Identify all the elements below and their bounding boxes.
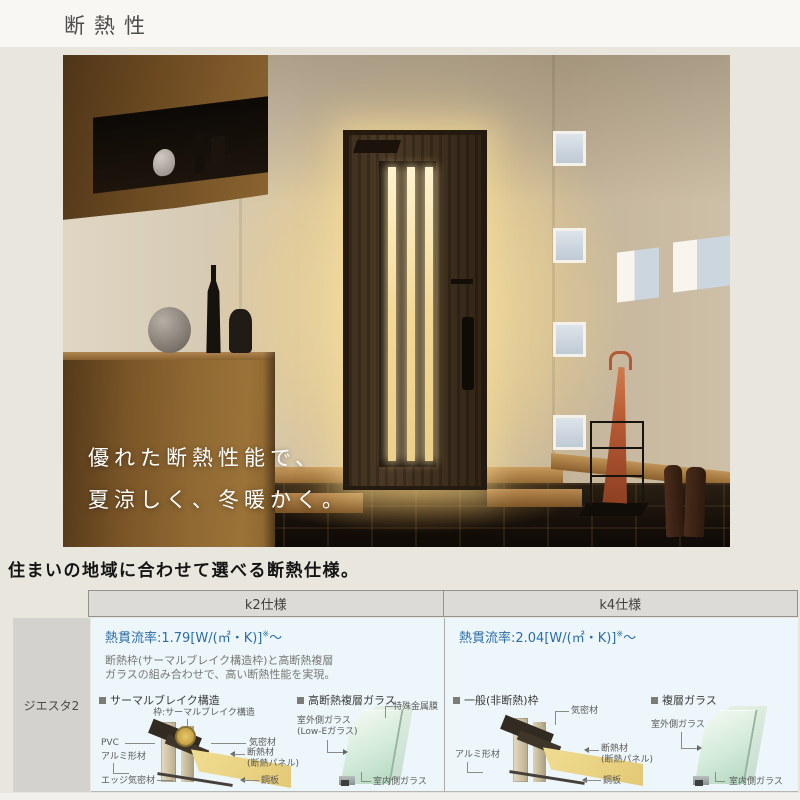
leader-line xyxy=(555,711,569,712)
door-closer xyxy=(353,140,401,153)
label-insulation-sub: (断熱パネル) xyxy=(601,755,653,766)
slit-window xyxy=(553,228,586,263)
spec-table-header: k2仕様 k4仕様 xyxy=(88,590,798,617)
label-inner-glass: 室内側ガラス xyxy=(373,777,427,788)
boot xyxy=(664,465,685,538)
u-value-text: 熱貫流率:1.79[W/(㎡・K)] xyxy=(105,631,262,646)
label-aluminum: アルミ形材 xyxy=(455,750,500,761)
leader-line xyxy=(681,732,682,748)
slit-window xyxy=(553,415,586,450)
arrow-icon xyxy=(697,745,705,751)
bottle-vase xyxy=(203,265,224,353)
insulated-glass-diagram: 高断熱複層ガラス 特殊金属膜 室外側ガラス (Low-Eガラス) 室内側ガラス xyxy=(297,692,441,790)
hero-caption-line1: 優れた断熱性能で、 xyxy=(88,437,348,479)
square-bullet-icon xyxy=(651,697,658,704)
leader-line xyxy=(157,780,173,781)
door-glass-panel xyxy=(379,161,436,467)
label-steel: 鋼板 xyxy=(603,776,621,787)
wood-step xyxy=(487,489,582,507)
spec-cell-k4: 熱貫流率:2.04[W/(㎡・K)]※〜 一般(非断熱)枠 気密材 アルミ形材 … xyxy=(444,618,798,792)
diagram-title: 一般(非断熱)枠 xyxy=(453,692,539,708)
slit-window xyxy=(553,322,586,357)
double-glazing-diagram: 複層ガラス 室外側ガラス 室内側ガラス xyxy=(651,692,795,790)
square-bullet-icon xyxy=(99,697,106,704)
label-film: 特殊金属膜 xyxy=(393,702,438,713)
standard-frame-diagram: 一般(非断熱)枠 気密材 アルミ形材 断熱材 (断熱パネル) 鋼板 xyxy=(453,692,648,790)
umbrella-stand xyxy=(590,421,644,505)
door-handle xyxy=(462,317,474,390)
u-value-tilde: 〜 xyxy=(269,631,282,646)
square-bullet-icon xyxy=(297,697,304,704)
label-insulation-sub: (断熱パネル) xyxy=(247,759,299,770)
wall-cabinet xyxy=(63,55,268,225)
shelf-bottle xyxy=(195,132,205,173)
small-vase xyxy=(229,309,252,353)
spec-description-line2: ガラスの組み合わせで、高い断熱性能を実現。 xyxy=(105,666,335,682)
slit-window xyxy=(617,247,659,302)
leader-line xyxy=(467,762,468,772)
leader-line xyxy=(585,780,601,781)
leader-line xyxy=(361,781,371,782)
leader-line xyxy=(681,748,697,749)
u-value-k4: 熱貫流率:2.04[W/(㎡・K)]※〜 xyxy=(459,627,636,646)
leader-line xyxy=(467,772,483,773)
diagram-title: 高断熱複層ガラス xyxy=(297,692,396,708)
door-lock xyxy=(451,279,473,284)
cabinet-shelf xyxy=(93,96,268,193)
label-outer-glass: 室外側ガラス xyxy=(651,720,705,731)
leader-line xyxy=(715,781,725,782)
table-header-k4: k4仕様 xyxy=(443,591,798,616)
leader-line xyxy=(385,706,393,707)
leader-line xyxy=(125,743,155,744)
front-door xyxy=(343,130,487,490)
table-header-k2: k2仕様 xyxy=(89,591,443,616)
door-glass-slit xyxy=(388,167,396,461)
leader-line xyxy=(385,706,386,718)
boot xyxy=(684,467,706,538)
label-pvc: PVC xyxy=(101,738,119,749)
leader-line xyxy=(243,780,259,781)
diagram-title: サーマルブレイク構造 xyxy=(99,692,220,708)
label-airtight: 気密材 xyxy=(571,706,598,717)
round-vase xyxy=(148,307,191,353)
slit-window xyxy=(553,131,586,166)
square-bullet-icon xyxy=(453,697,460,704)
hero-caption-line2: 夏涼しく、冬暖かく。 xyxy=(88,479,348,521)
section-heading: 住まいの地域に合わせて選べる断熱仕様。 xyxy=(8,556,360,581)
label-aluminum: アルミ形材 xyxy=(101,752,146,763)
arrow-icon xyxy=(343,749,351,755)
label-insulation: 断熱材 xyxy=(601,744,628,755)
u-value-tilde: 〜 xyxy=(623,631,636,646)
hero-photo: 優れた断熱性能で、 夏涼しく、冬暖かく。 xyxy=(63,55,730,547)
leader-line xyxy=(327,752,343,753)
label-insulation: 断熱材 xyxy=(247,748,274,759)
glass-spacer-art xyxy=(695,780,703,786)
label-frame-note: 枠:サーマルブレイク構造 xyxy=(129,708,279,719)
u-value-text: 熱貫流率:2.04[W/(㎡・K)] xyxy=(459,631,616,646)
spec-cell-k2: 熱貫流率:1.79[W/(㎡・K)]※〜 断熱枠(サーマルブレイク構造枠)と高断… xyxy=(91,618,444,792)
page-header: 断熱性 xyxy=(0,0,800,47)
leader-line xyxy=(327,740,328,752)
page-title: 断熱性 xyxy=(64,10,154,40)
leader-line xyxy=(587,750,599,751)
leader-line xyxy=(555,711,556,725)
label-outer-glass-sub: (Low-Eガラス) xyxy=(297,727,358,738)
leader-line xyxy=(113,763,114,773)
leader-line xyxy=(113,773,129,774)
label-outer-glass: 室外側ガラス xyxy=(297,716,351,727)
catalog-page: 断熱性 xyxy=(0,0,800,800)
leader-line xyxy=(233,754,245,755)
umbrella-handle xyxy=(609,351,632,370)
diagram-title: 複層ガラス xyxy=(651,692,717,708)
u-value-k2: 熱貫流率:1.79[W/(㎡・K)]※〜 xyxy=(105,627,282,646)
row-label: ジエスタ2 xyxy=(13,618,90,792)
bottom-strip xyxy=(0,793,800,800)
magnifier-icon xyxy=(175,726,196,747)
label-inner-glass: 室内側ガラス xyxy=(729,777,783,788)
thermal-break-diagram: サーマルブレイク構造 枠:サーマルブレイク構造 PVC 気密材 アルミ形材 断熱… xyxy=(99,692,294,790)
glass-spacer-art xyxy=(341,780,349,786)
leader-line xyxy=(211,743,246,744)
label-steel: 鋼板 xyxy=(261,776,279,787)
door-glass-slit xyxy=(407,167,415,461)
label-edge: エッジ気密材 xyxy=(101,776,155,787)
door-glass-slit xyxy=(425,167,433,461)
shelf-vase xyxy=(211,136,225,172)
shelf-vase xyxy=(153,148,175,178)
slit-window xyxy=(673,236,730,293)
hero-caption: 優れた断熱性能で、 夏涼しく、冬暖かく。 xyxy=(88,437,348,521)
